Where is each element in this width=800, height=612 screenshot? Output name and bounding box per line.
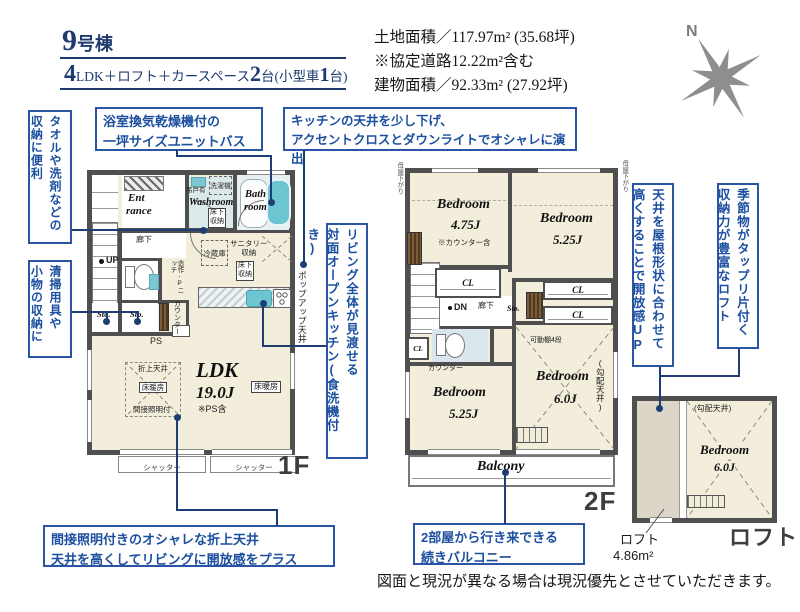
hanging-cabinet-label: 吊戸有 [186,187,206,195]
note-line: キッチンの天井を少し下げ、 [291,112,569,131]
ldk-label: LDK [196,360,238,381]
stairs-up-label: UP [106,255,119,266]
window [538,168,600,173]
building-number: 9 [62,24,77,57]
hall-counter [159,303,169,331]
layout-text-2: 台(小型車 [261,69,320,84]
note-line: 続きバルコニー [421,548,577,568]
entrance-label-2: rance [126,206,152,217]
connector-line [262,305,264,347]
note-kitchen-ceiling: キッチンの天井を少し下げ、 アクセントクロスとダウンライトでオシャレに演出 [283,107,577,151]
balcony-label: Balcony [477,460,524,474]
ldk-size-label: 19.0J [196,384,234,401]
shelf-label: 可動棚4段 [530,337,562,345]
porch-step-line [92,208,118,209]
window [613,352,618,398]
hallway-label-2f: 廊下 [478,301,494,311]
porch-step-line [92,192,118,193]
shutter-label: シャッター [235,463,273,472]
bedroom1-label: Bedroom [437,198,490,212]
building-area: 建物面積／92.33m² (27.92坪) [374,74,575,98]
loft-divider [679,401,687,518]
note-line: 高くすることで開放感UP [627,188,646,362]
bedroom1-note: ※カウンター含 [438,238,491,247]
connector-line [659,367,661,408]
wall-segment [490,325,494,366]
connector-dot [300,261,307,268]
up-marker-dot [99,259,104,264]
porch-steps [92,175,118,226]
dn-marker-dot [448,306,452,310]
connector-line [176,155,272,157]
connector-line [504,474,506,524]
connector-dot [268,199,275,206]
coffered-label: 折上天井 [138,364,168,373]
entrance-label-1: Ent [128,193,145,204]
closet-wood-2f [407,232,422,265]
closet-label: CL [462,279,474,288]
sloped-ceiling-label-2f: (勾配天井) [595,358,605,434]
hallway-label-1f: 廊下 [136,235,152,245]
closet-label: CL [413,345,423,353]
note-line: 一坪サイズユニットバス [103,132,255,152]
window [87,400,92,442]
bedroom4-label: Bedroom [536,370,589,384]
washer-label: 洗濯機 [209,176,232,195]
connector-line [303,150,305,264]
note-line: 天井を高くしてリビングに開放感をプラス [51,550,327,570]
note-line: 収納力が豊富なロフト [712,188,731,344]
land-area: 土地面積／117.97m² (35.68坪) [374,26,575,50]
window [247,170,285,175]
shutter-left: シャッター [118,456,206,473]
closet-pole [548,294,608,295]
note-line: 清掃用具や [45,265,64,353]
balcony-rail-line [412,478,611,479]
note-line: 2部屋から行き来できる [421,528,577,548]
floor-heating-label-2: 床暖房 [251,381,281,393]
sanitary-line-2: 収納 [230,248,268,257]
loft-area-label-name: ロフト [620,532,659,548]
counter-label-2f: カウンター [428,365,463,373]
window [405,372,410,418]
connector-line [270,155,272,201]
window [290,353,295,389]
connector-dot [134,318,141,325]
loft-open-area [637,401,679,518]
toilet-bowl-2f [445,333,465,358]
building-suffix: 号棟 [77,34,113,54]
indirect-light-label: 間接照明付 [133,405,171,414]
roof-slope-line [514,205,613,206]
genkan-step [124,176,164,191]
loft-bedroom-size: 6.0J [714,461,735,473]
connector-line [72,229,204,231]
connector-line [262,345,326,347]
bathroom-label-2: room [244,203,267,214]
disclaimer: 図面と現況が異なる場合は現況優先とさせていただきます。 [377,570,781,591]
loft-ladder-2f [516,427,548,443]
note-line: 収納に便利 [27,115,46,239]
fridge-label: 冷蔵庫 [201,240,228,266]
stove-burners-icon [274,290,290,307]
stove-icon [273,289,291,308]
storage-wood-2f [526,292,543,319]
hand-basin-1f [149,274,159,290]
compass-rose-icon: N [666,18,776,130]
underfloor-storage-label-2: 床下収納 [236,261,254,281]
note-loft-storage: 季節物がタップリ片付く 収納力が豊富なロフト [717,183,759,349]
hanging-cabinet [191,177,206,187]
connector-line [660,375,740,377]
layout-num-2: 2 [250,61,261,86]
sloped-ceiling-label-loft: (勾配天井) [694,404,731,414]
niche-label: 造作-Pニッチ [168,260,183,296]
loft-bedroom-label: Bedroom [700,443,749,456]
note-unit-bath: 浴室換気乾燥機付の 一坪サイズユニットバス [95,107,263,151]
connector-dot [200,227,207,234]
window [432,168,478,173]
wall-segment [508,172,512,272]
underfloor-storage-label: 床下収納 [208,208,226,228]
window [120,449,204,455]
road-note: ※協定道路12.22m²含む [374,50,575,74]
layout-num-4: 4 [64,61,76,87]
floor-heating-label-1: 床暖房 [139,382,167,393]
note-line: リビング全体が見渡せる [341,228,360,454]
floor-loft-label: ロフト [729,520,798,552]
layout-text-1: LDK＋ロフト＋カースペース [76,69,250,84]
note-open-kitchen: リビング全体が見渡せる 対面オープンキッチン(食洗機付き) [326,223,368,459]
bedroom3-label: Bedroom [433,386,486,400]
note-line: 間接照明付きのオシャレな折上天井 [51,530,327,550]
loft-area-label-value: 4.86m² [613,548,653,564]
storage-label-2f: Sto. [507,305,520,313]
note-cleaning-storage: 清掃用具や 小物の収納に [28,260,72,358]
note-line: 浴室換気乾燥機付の [103,112,255,132]
note-roof-ceiling: 天井を屋根形状に合わせて 高くすることで開放感UP [632,183,674,367]
closet-pole [440,289,496,290]
bedroom1-size: 4.75J [451,218,480,231]
note-towel-storage: タオルや洗剤などの 収納に便利 [28,110,72,244]
roof-lowered-label-left: 母屋下がり [395,162,403,208]
loft-ladder [687,495,725,508]
closet-br2-a: CL [543,281,613,300]
connector-dot [103,318,110,325]
hallway-floor [122,233,186,258]
wall-segment [512,278,516,325]
bedroom4-size: 6.0J [554,392,577,405]
note-line: アクセントクロスとダウンライトでオシャレに演出 [291,131,569,169]
layout-line: 4LDK＋ロフト＋カースペース2台(小型車1台) [64,61,347,88]
area-info: 土地面積／117.97m² (35.68坪) ※協定道路12.22m²含む 建物… [374,26,575,98]
layout-text-3: 台) [329,69,347,84]
connector-line [276,509,278,526]
sanitary-storage-label: サニタリー 収納 [230,239,268,257]
ps-note-label: ※PS含 [198,404,227,415]
stairs-dn-label: DN [454,302,467,313]
kitchen-sink [246,290,272,307]
layout-num-1: 1 [319,64,329,86]
bedroom2-label: Bedroom [540,212,593,226]
closet-hall-2f: CL [407,337,429,360]
bathroom-label-1: Bath [245,190,266,201]
note-line: タオルや洗剤などの [45,115,64,239]
title-rule-top [60,57,346,59]
note-coffered-ceiling: 間接照明付きのオシャレな折上天井 天井を高くしてリビングに開放感をプラス [43,525,335,567]
building-title: 9号棟 [62,24,113,58]
note-line: 季節物がタップリ片付く [732,188,751,344]
compass-n-label: N [686,23,698,40]
ps-label: PS [150,336,162,347]
note-line: 対面オープンキッチン(食洗機付き) [302,228,341,454]
connector-line [176,509,278,511]
sanitary-line-1: サニタリー [230,239,268,248]
bedroom2-size: 5.25J [553,233,582,246]
counter-label-1f: カウンター [172,300,180,344]
hallway-floor-2f [440,296,512,326]
note-balcony: 2部屋から行き来できる 続きバルコニー [413,523,585,565]
closet-br2-b: CL [543,306,613,325]
floorplan-flyer: 9号棟 4LDK＋ロフト＋カースペース2台(小型車1台) 土地面積／117.97… [0,0,800,612]
loft-area-pointer-line [644,505,666,535]
note-line: 小物の収納に [27,265,46,353]
connector-line [738,349,740,377]
closet-pole [548,319,608,320]
washroom-label: Washroom [189,198,233,208]
floor-2f-label: 2F [584,486,616,517]
floor-1f-label: 1F [278,450,310,481]
connector-dot [656,405,663,412]
title-rule-bottom [60,88,346,90]
closet-br1: CL [435,268,501,298]
bedroom3-size: 5.25J [449,407,478,420]
window [87,350,92,390]
connector-line [176,419,178,511]
note-line: 天井を屋根形状に合わせて [647,188,666,362]
